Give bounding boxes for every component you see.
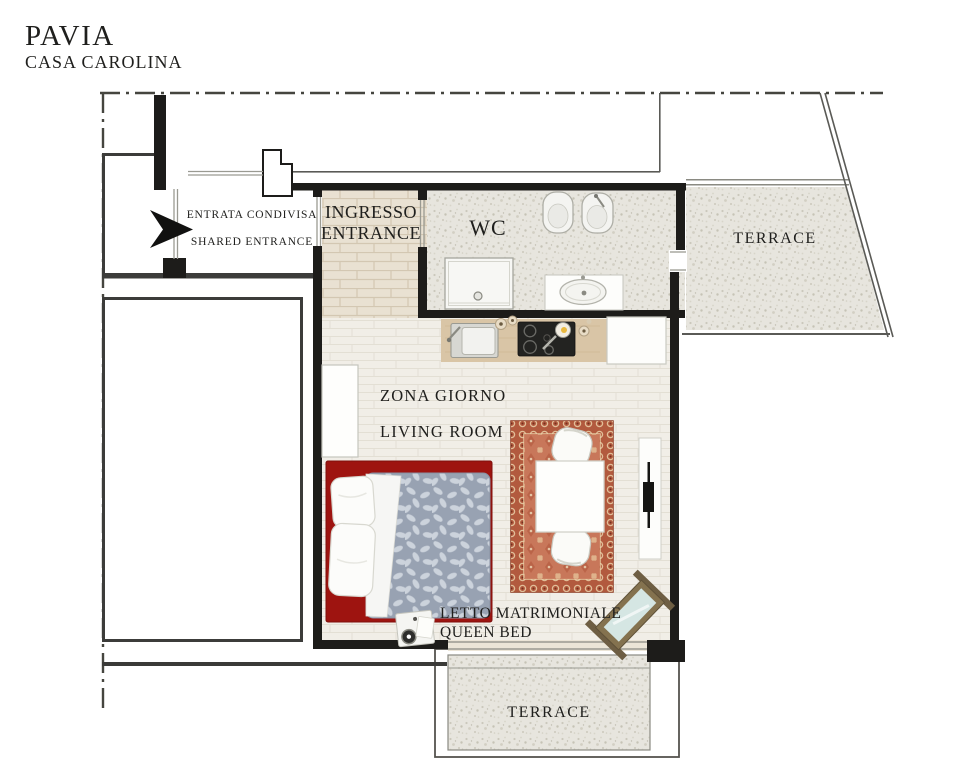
page-subtitle: CASA CAROLINA (25, 52, 183, 72)
lower-terrace-label: TERRACE (507, 704, 590, 721)
upper-terrace-label: TERRACE (733, 230, 816, 247)
wc-partition-wall (418, 247, 427, 310)
bidet-faucet-dot (594, 194, 598, 198)
shared-entrance-label-it: ENTRATA CONDIVISA (187, 209, 318, 221)
kitchen-cabinet (607, 317, 666, 364)
dining-chair-bottom (550, 527, 593, 568)
terrace-door-gap (669, 250, 687, 272)
terrace-door (669, 250, 687, 272)
floor-plan-canvas: PAVIA CASA CAROLINA (0, 0, 960, 779)
bed-label-it: LETTO MATRIMONIALE (440, 605, 621, 622)
jar-lid-dot-right (582, 329, 585, 332)
bottom-right-corner-wall (647, 640, 685, 662)
kitchen-faucet-base (447, 338, 451, 342)
shared-entrance-label-en: SHARED ENTRANCE (191, 236, 313, 248)
cooktop (518, 322, 575, 356)
entry-pillar-wall (154, 95, 166, 190)
top-wall (290, 183, 686, 191)
parapet-edge-line (290, 171, 660, 173)
shower-tray (445, 258, 513, 309)
upper-terrace-floor (686, 187, 884, 330)
left-room-top-wall (102, 297, 303, 300)
shared-entrance-left-wall (102, 153, 105, 278)
jar-small-top (587, 319, 592, 324)
neighbour-divider-line (659, 93, 661, 172)
upper-terrace-railing-inner (686, 184, 849, 186)
upper-terrace-railing (686, 179, 849, 181)
record-player (395, 610, 437, 647)
sink-drain (582, 291, 587, 296)
pillow-second (328, 523, 376, 597)
queen-bed (326, 461, 492, 622)
living-room-label-en: LIVING ROOM (380, 422, 504, 441)
toilet-icon (543, 192, 573, 233)
left-room-bottom-wall (102, 639, 303, 642)
living-left-wall (313, 246, 322, 649)
entrance-left-wall-upper-stub (313, 183, 322, 197)
entrance-label-it: INGRESSO (325, 202, 417, 222)
jar-lid-dot (499, 322, 503, 326)
wardrobe (322, 365, 358, 457)
left-room-right-wall (300, 297, 303, 642)
jar-lid-dot-small (511, 319, 514, 322)
entrance-label-en: ENTRANCE (321, 223, 421, 243)
bottom-boundary-wall (102, 662, 447, 666)
tv-area (639, 438, 661, 559)
wc-label: WC (469, 215, 506, 240)
bidet-icon (582, 193, 613, 233)
wc-partition-upper-stub (418, 190, 427, 200)
fried-egg-yolk (561, 327, 567, 333)
dining-table (536, 461, 604, 532)
floor-plan-page: PAVIA CASA CAROLINA (0, 0, 960, 779)
bed-label-en: QUEEN BED (440, 624, 532, 641)
right-wall-lower (670, 272, 679, 640)
record-sleeve (416, 616, 435, 638)
entry-pillar-lower (163, 258, 186, 278)
shower-drain (474, 292, 482, 300)
lower-terrace-floor (448, 655, 650, 750)
kitchen-sink (447, 324, 498, 358)
page-title: PAVIA (25, 20, 115, 52)
pillow (330, 476, 375, 529)
left-room-left-wall (102, 297, 105, 642)
shared-entrance-bottom-wall (102, 273, 315, 279)
living-room-label-it: ZONA GIORNO (380, 386, 506, 405)
right-wall-upper (676, 186, 685, 250)
bathroom-sink (545, 275, 623, 310)
kitchen (441, 316, 666, 364)
stepped-pillar (263, 150, 292, 196)
sink-faucet (581, 276, 585, 280)
tv-body (643, 482, 654, 512)
upper-terrace-bottom-edge (682, 333, 890, 335)
dining-area (511, 421, 613, 592)
